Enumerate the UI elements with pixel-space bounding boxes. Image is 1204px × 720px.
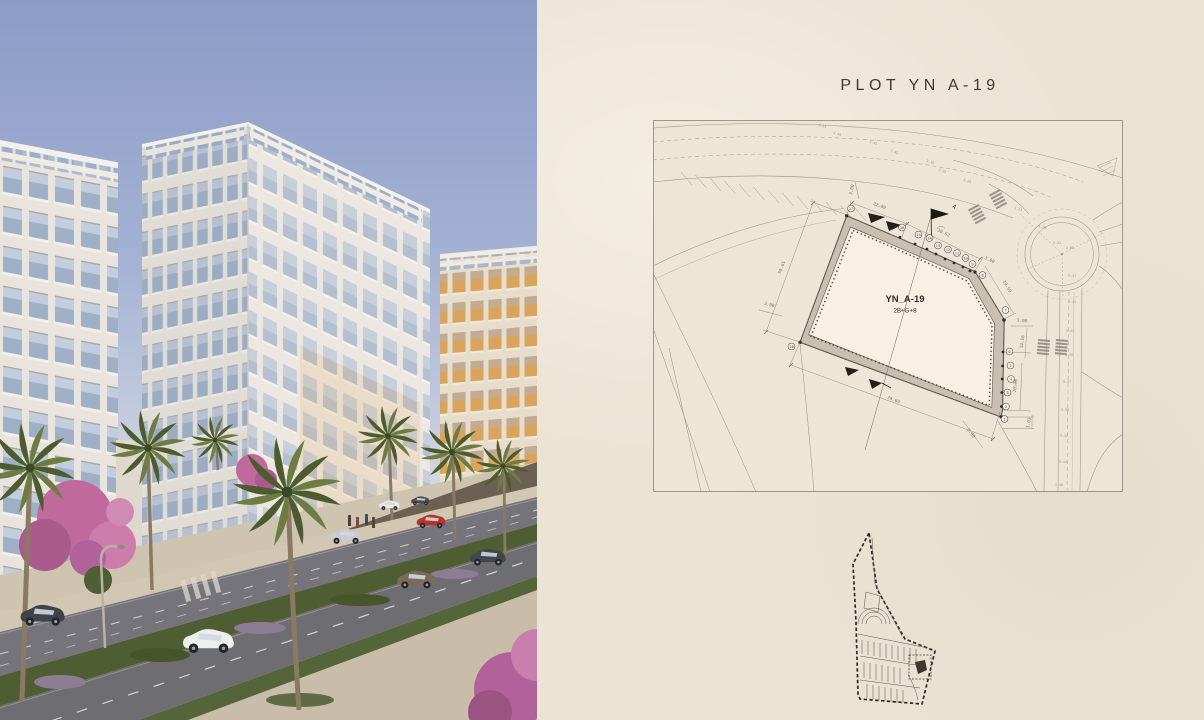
svg-text:16: 16	[900, 225, 905, 230]
boundary-marker: 3	[1004, 389, 1011, 396]
page: PLOT YN A-19	[0, 0, 1204, 720]
spot-elevation-label: 3.21	[1053, 241, 1061, 245]
spot-elevation-label: 3.36	[1065, 353, 1073, 357]
svg-text:12: 12	[946, 247, 951, 252]
key-map-highlight	[915, 660, 927, 674]
page-title: PLOT YN A-19	[840, 77, 999, 95]
boundary-marker: 12	[945, 246, 952, 253]
spot-elevation-label: 3.44	[1068, 300, 1076, 304]
spot-elevation-label: 3.38	[1061, 408, 1069, 412]
svg-text:11: 11	[955, 250, 960, 255]
svg-text:2: 2	[1005, 404, 1007, 409]
boundary-marker: 6	[1006, 348, 1013, 355]
boundary-marker: 2	[1003, 403, 1010, 410]
boundary-marker: 17	[848, 205, 855, 212]
svg-text:7: 7	[1004, 307, 1006, 312]
plan-page: PLOT YN A-19	[537, 0, 1204, 720]
boundary-marker: 5	[1007, 362, 1014, 369]
svg-text:10: 10	[963, 255, 968, 260]
boundary-marker: 16	[899, 224, 906, 231]
svg-text:17: 17	[849, 206, 854, 211]
spot-elevation-label: 3.41	[1068, 274, 1076, 278]
render-photo	[0, 0, 537, 720]
site-plan: A	[653, 120, 1123, 492]
boundary-marker: 7	[1002, 307, 1009, 314]
render-photo-svg	[0, 0, 537, 720]
boundary-marker: 11	[954, 250, 961, 257]
svg-text:15: 15	[916, 232, 921, 237]
boundary-marker: 18	[788, 343, 795, 350]
boundary-marker: 15	[915, 231, 922, 238]
boundary-marker: 1	[1001, 416, 1008, 423]
boundary-marker: 13	[935, 242, 942, 249]
key-map-streets	[858, 538, 928, 703]
key-map	[842, 524, 944, 708]
svg-text:5: 5	[1009, 363, 1011, 368]
key-map-svg	[842, 524, 944, 708]
svg-text:14: 14	[927, 235, 932, 240]
spot-elevation-label: 3.48	[1055, 483, 1063, 487]
spot-elevation-label: 3.41	[1066, 329, 1074, 333]
boundary-marker: 8	[979, 272, 986, 279]
spot-elevation-label: 3.44	[1059, 460, 1067, 464]
site-plan-svg: A	[653, 120, 1123, 492]
spot-elevation-label: 3.37	[1063, 380, 1071, 384]
boundary-marker: 10	[962, 255, 969, 262]
dimension-label: 3.00	[1017, 317, 1028, 324]
boundary-marker: 14	[926, 235, 933, 242]
svg-text:3: 3	[1006, 390, 1008, 395]
spot-elevation-label: 3.42	[1060, 434, 1068, 438]
spot-elevation-label: 3.85	[1066, 246, 1074, 250]
svg-text:13: 13	[936, 243, 941, 248]
plot-storeys-label: 2B+G+8	[893, 308, 917, 315]
svg-text:18: 18	[789, 344, 794, 349]
street-lamp-head	[117, 545, 125, 549]
plot-label: YN_A-19	[885, 294, 924, 305]
boundary-marker: 9	[969, 261, 976, 268]
